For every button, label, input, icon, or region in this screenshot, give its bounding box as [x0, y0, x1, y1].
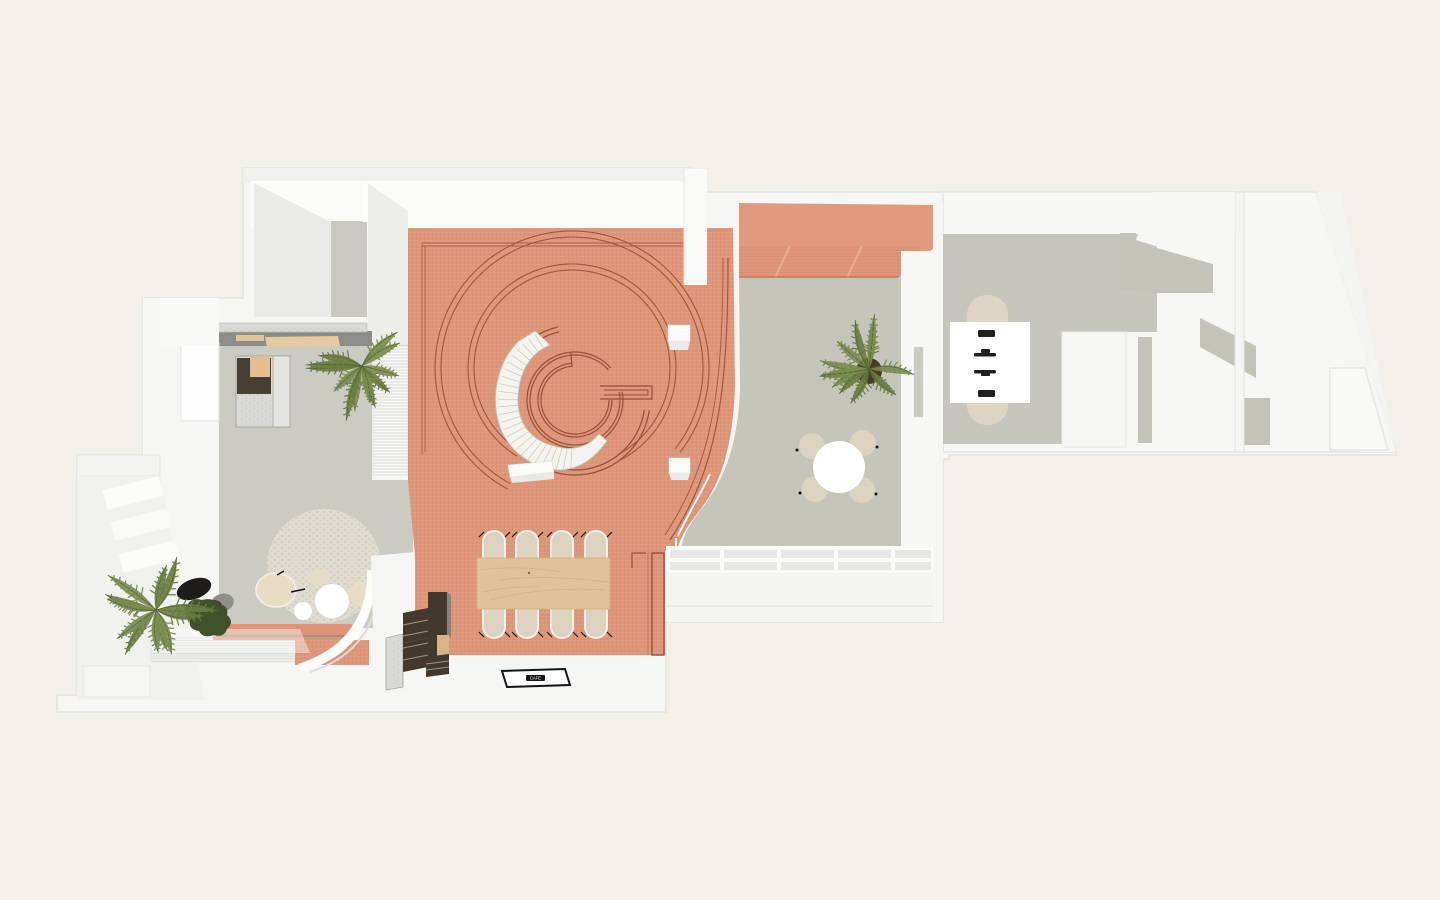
svg-text:CAFE: CAFE — [530, 676, 541, 681]
